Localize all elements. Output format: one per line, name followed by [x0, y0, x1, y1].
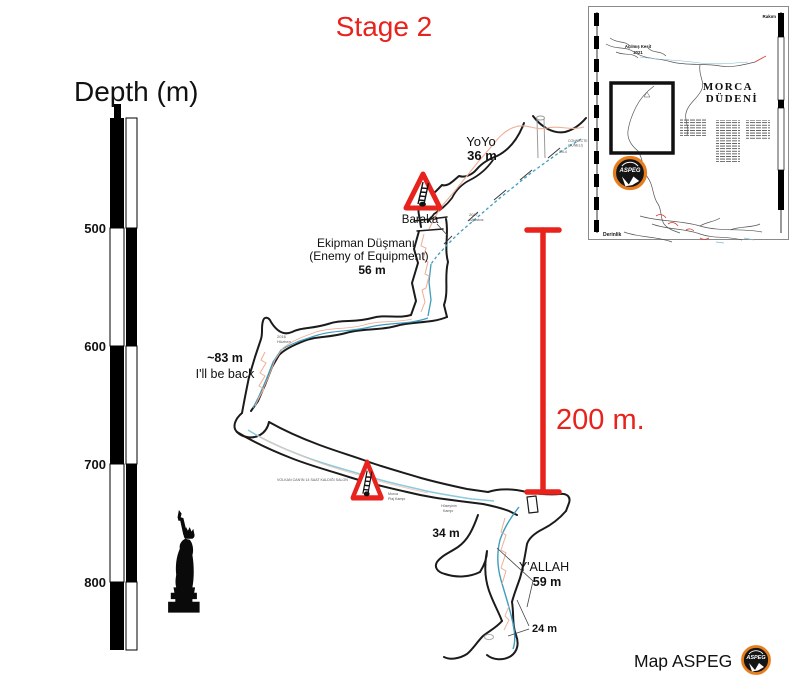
statue-of-liberty-icon — [168, 510, 200, 613]
label-yoyo: YoYo — [466, 134, 495, 149]
map-credit: Map ASPEG — [634, 651, 732, 671]
micro-label: Morca — [388, 492, 398, 496]
micro-label: Ağustos — [469, 217, 483, 222]
depth-scale-top-tick — [114, 104, 121, 118]
micro-label: VOLKAN CAN'IN 14 SAAT KALDIĞI SALON — [277, 477, 348, 482]
inset-legend-greek-3 — [746, 120, 770, 140]
breakdown-block — [485, 634, 494, 639]
inset-legend-greek-1 — [680, 118, 706, 136]
micro-label: Hüzhen — [277, 339, 291, 344]
inset-overview-map: Rakım Derinlik Açılmış Kesit 2021 MORCA … — [589, 7, 789, 244]
label-illbeback-length: ~83 m — [207, 351, 243, 365]
micro-label: Hüseyinin — [441, 504, 457, 508]
inset-legend-greek-2 — [716, 120, 740, 162]
stream-lower — [498, 507, 519, 649]
inset-rakim-label: Rakım — [762, 14, 776, 19]
rope-24 — [504, 606, 509, 630]
label-ekipman-line2: (Enemy of Equipment) — [309, 249, 428, 263]
tick-600: 600 — [84, 339, 106, 354]
label-yallah-length: 59 m — [533, 575, 562, 589]
label-illbeback: I'll be back — [196, 367, 255, 381]
label-ekipman-line1: Ekipman Düşmanı — [317, 236, 415, 250]
label-34m: 34 m — [432, 526, 459, 540]
cave-wall-path — [533, 116, 586, 132]
depth-axis-title: Depth (m) — [74, 76, 198, 107]
depth-scale-ticks: 500 600 700 800 — [84, 221, 106, 590]
inset-title-line1: MORCA — [703, 81, 753, 93]
cave-wall-path — [527, 496, 538, 513]
tick-700: 700 — [84, 457, 106, 472]
stream-pitch — [428, 264, 431, 316]
micro-label: (TÜNELİ) — [568, 143, 583, 148]
vertical-scale-bar — [527, 230, 559, 492]
inset-title-line2: DÜDENİ — [706, 92, 758, 105]
depth-scale-bar — [110, 104, 137, 650]
cave-survey-drawing: Stage 2 Depth (m) 500 600 700 800 — [0, 0, 800, 689]
cave-wall-path — [483, 504, 517, 515]
rope-ekipman — [421, 234, 429, 312]
stream-dashed-upper — [431, 139, 581, 264]
tick-500: 500 — [84, 221, 106, 236]
label-ekipman-length: 56 m — [358, 263, 385, 277]
label-yallah: Y'ALLAH — [519, 560, 569, 574]
page-title: Stage 2 — [336, 11, 433, 42]
rope-shaft — [258, 352, 266, 399]
tick-800: 800 — [84, 575, 106, 590]
cave-survey-page: Stage 2 Depth (m) 500 600 700 800 — [0, 0, 800, 689]
micro-label: 2014 — [559, 150, 567, 154]
cave-wall-path — [480, 551, 502, 621]
cave-wall-path — [444, 621, 502, 659]
scale-bar-label: 200 m. — [556, 404, 645, 436]
aspeg-logo-inset-text: ASPEG — [618, 168, 640, 174]
rope-meander — [258, 436, 428, 493]
inset-derinlik-label: Derinlik — [603, 232, 622, 238]
label-baraka: Baraka — [402, 214, 439, 226]
rope-upper — [429, 126, 584, 229]
label-yoyo-length: 36 m — [467, 148, 497, 163]
cave-wall-path — [436, 515, 480, 576]
label-24m: 24 m — [532, 623, 557, 635]
micro-label: Plaj Kampı — [388, 497, 405, 501]
micro-label: Kampı — [443, 509, 453, 513]
aspeg-logo-main-text: ASPEG — [745, 655, 766, 661]
micro-label: CONNECTE — [568, 139, 588, 143]
